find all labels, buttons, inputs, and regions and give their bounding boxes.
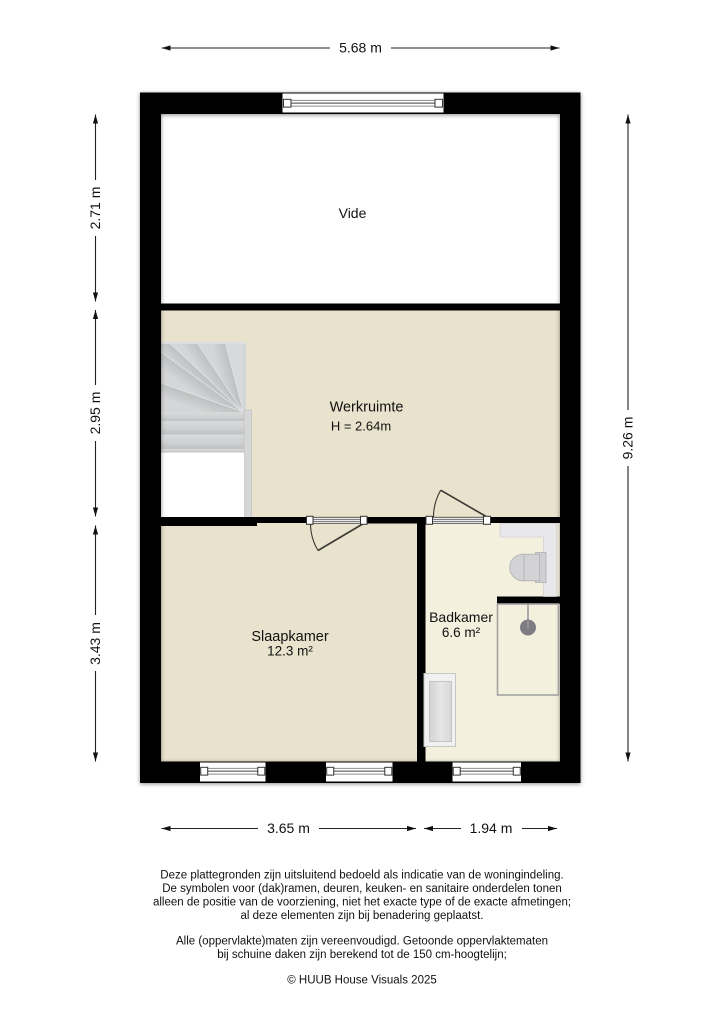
svg-text:Alle (oppervlakte)maten zijn v: Alle (oppervlakte)maten zijn vereenvoudi…: [176, 936, 548, 948]
svg-text:© HUUB House Visuals 2025: © HUUB House Visuals 2025: [287, 975, 437, 987]
svg-text:al deze elementen zijn bij ben: al deze elementen zijn bij benadering ge…: [241, 910, 484, 922]
svg-text:3.43 m: 3.43 m: [87, 622, 103, 665]
svg-text:Deze plattegronden zijn uitslu: Deze plattegronden zijn uitsluitend bedo…: [160, 870, 563, 882]
svg-text:1.94 m: 1.94 m: [470, 820, 513, 836]
svg-text:H = 2.64m: H = 2.64m: [331, 419, 391, 434]
svg-text:2.71 m: 2.71 m: [87, 187, 103, 230]
svg-text:12.3 m²: 12.3 m²: [267, 644, 313, 659]
svg-text:Vide: Vide: [339, 205, 367, 221]
svg-text:Badkamer: Badkamer: [429, 609, 493, 625]
svg-text:Werkruimte: Werkruimte: [330, 400, 404, 416]
svg-text:alleen de positie van de voorz: alleen de positie van de voorziening, ni…: [153, 897, 571, 909]
svg-text:bij schuine daken zijn bereken: bij schuine daken zijn berekend tot de 1…: [217, 949, 507, 961]
svg-text:3.65 m: 3.65 m: [267, 820, 310, 836]
svg-text:De symbolen voor (dak)ramen, d: De symbolen voor (dak)ramen, deuren, keu…: [162, 883, 562, 895]
svg-text:6.6 m²: 6.6 m²: [442, 625, 481, 640]
svg-text:9.26 m: 9.26 m: [620, 417, 636, 460]
svg-text:5.68 m: 5.68 m: [339, 40, 382, 56]
svg-text:2.95 m: 2.95 m: [87, 392, 103, 435]
